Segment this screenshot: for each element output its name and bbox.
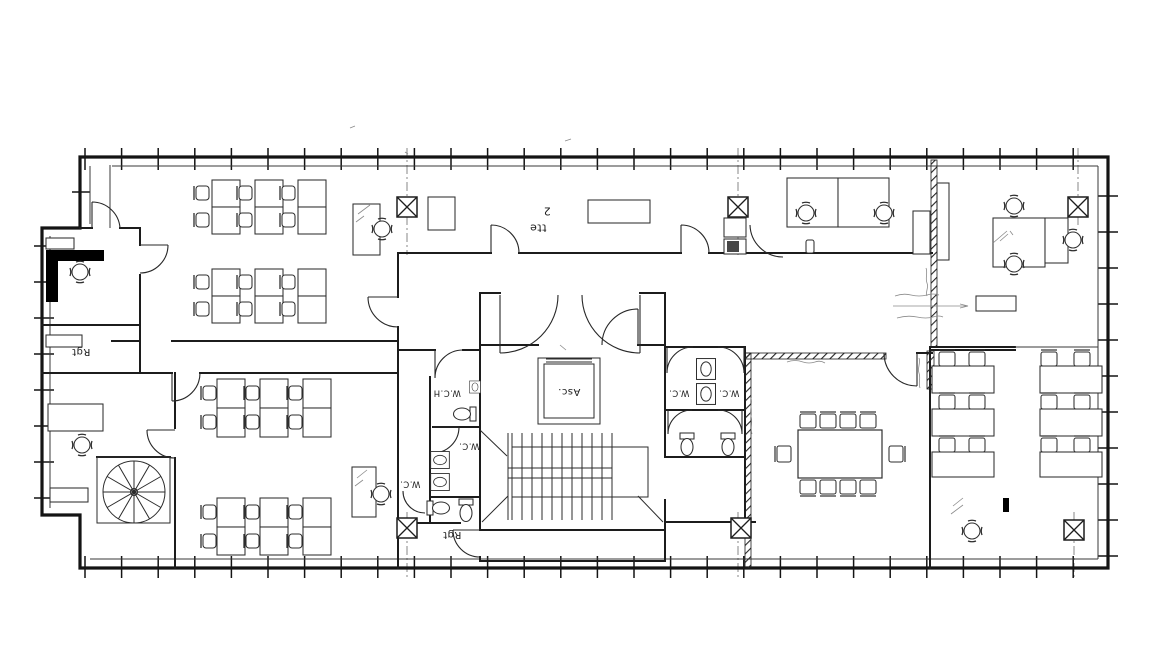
wc-right-fixtures xyxy=(680,359,735,457)
label-storage-bottom: Rgt xyxy=(443,529,462,539)
director-office-desks xyxy=(787,178,930,254)
desk-cluster-top-left-b xyxy=(194,269,326,323)
desk-cluster-lower-left-c xyxy=(201,379,331,437)
far-left-rooms-furniture xyxy=(46,238,104,502)
wc-left-fixtures xyxy=(427,381,481,522)
floor-plan-drawing xyxy=(0,0,1176,652)
conference-room-furniture xyxy=(775,412,905,496)
furniture xyxy=(46,178,1102,555)
floor-plan-page: Rgt tte 2 Asc. W.C.H W.C. W.C. W.C. W.C.… xyxy=(0,0,1176,652)
label-storage-left: Rgt xyxy=(72,346,91,356)
label-wc-right-stall-a: W.C. xyxy=(669,388,690,397)
interior-walls xyxy=(42,228,1015,568)
label-wc-center: W.C. xyxy=(459,441,480,450)
workstation-lower-left xyxy=(352,467,391,517)
manager-workstation-top-left xyxy=(353,204,392,255)
bottom-right-open-office xyxy=(932,350,1102,542)
desk-cluster-top-left-a xyxy=(194,180,326,234)
door-swings xyxy=(92,202,917,557)
stair-treads xyxy=(512,433,602,520)
label-wc-handicap: W.C.H xyxy=(433,388,461,397)
label-elevator: Asc. xyxy=(558,386,581,396)
main-staircase xyxy=(480,430,663,522)
desk-cluster-lower-left-d xyxy=(201,498,331,555)
label-wc-lower-left: W.C. xyxy=(400,479,421,488)
spiral-staircase xyxy=(97,457,170,523)
corridor-table xyxy=(588,200,650,223)
far-right-top-office xyxy=(937,183,1083,311)
cabinet-at-column xyxy=(724,218,746,254)
label-room-tag-line1: tte xyxy=(530,223,547,234)
label-room-tag-line2: 2 xyxy=(543,206,551,217)
label-wc-right-stall-b: W.C. xyxy=(719,388,740,397)
cabinet-top-corridor xyxy=(428,197,455,230)
scan-specks xyxy=(350,126,571,154)
